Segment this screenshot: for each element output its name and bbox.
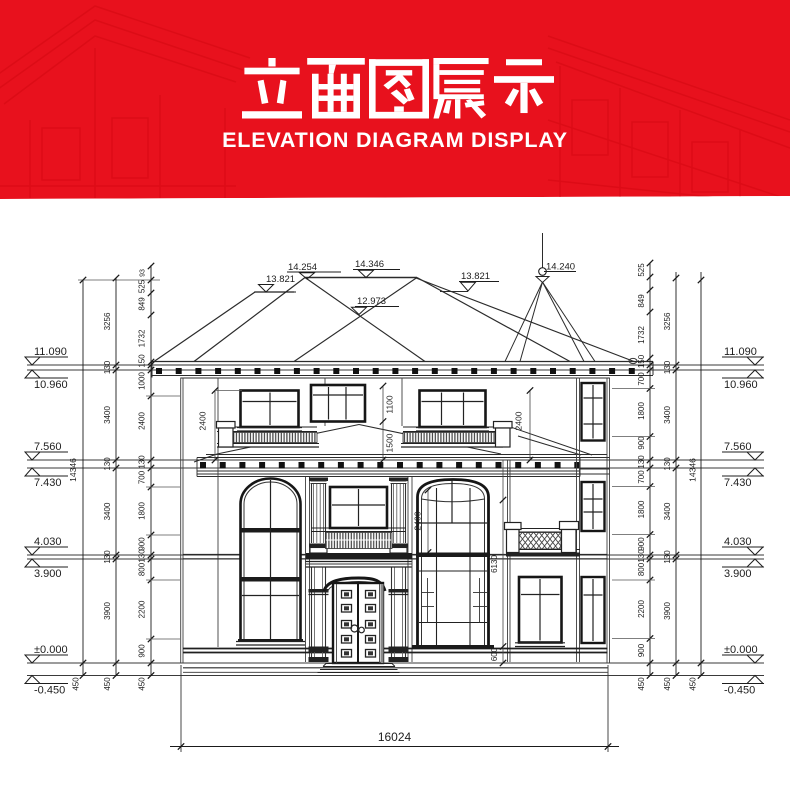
svg-text:130: 130 [663, 550, 672, 564]
svg-text:3.900: 3.900 [34, 568, 62, 580]
svg-text:450: 450 [663, 677, 672, 691]
svg-text:14.346: 14.346 [355, 259, 384, 270]
svg-text:6130: 6130 [490, 555, 499, 573]
svg-text:900: 900 [138, 537, 147, 551]
svg-text:11.090: 11.090 [724, 346, 757, 358]
svg-text:130: 130 [663, 457, 672, 471]
svg-text:14.240: 14.240 [546, 262, 575, 273]
svg-text:ELEVATION DIAGRAM DISPLAY: ELEVATION DIAGRAM DISPLAY [222, 128, 568, 152]
svg-text:130: 130 [103, 457, 112, 471]
svg-text:1100: 1100 [385, 395, 395, 414]
svg-text:130: 130 [103, 360, 112, 374]
svg-text:2200: 2200 [637, 600, 646, 618]
svg-text:10.960: 10.960 [724, 379, 758, 391]
svg-text:13.821: 13.821 [461, 271, 490, 282]
svg-text:525: 525 [637, 263, 646, 277]
svg-text:700: 700 [138, 470, 147, 484]
svg-text:14346: 14346 [688, 458, 698, 482]
svg-text:2200: 2200 [138, 600, 147, 618]
svg-text:1800: 1800 [138, 502, 147, 520]
svg-text:3900: 3900 [663, 602, 672, 620]
svg-text:7.560: 7.560 [34, 441, 62, 453]
svg-text:849: 849 [637, 294, 646, 308]
svg-text:3900: 3900 [103, 602, 112, 620]
svg-text:450: 450 [103, 677, 112, 691]
svg-text:450: 450 [637, 677, 646, 691]
svg-text:12.973: 12.973 [357, 296, 386, 307]
svg-text:3400: 3400 [663, 406, 672, 424]
svg-text:4.030: 4.030 [34, 536, 62, 548]
svg-text:130: 130 [138, 455, 147, 469]
svg-text:4.030: 4.030 [724, 536, 752, 548]
svg-text:1800: 1800 [637, 500, 646, 518]
svg-text:7.430: 7.430 [34, 477, 62, 489]
svg-text:3400: 3400 [663, 502, 672, 520]
svg-text:130: 130 [637, 549, 646, 563]
svg-text:2400: 2400 [514, 411, 524, 430]
svg-text:7.560: 7.560 [724, 441, 752, 453]
svg-text:13.821: 13.821 [266, 274, 295, 285]
svg-text:3256: 3256 [103, 312, 112, 330]
svg-text:800: 800 [138, 562, 147, 576]
svg-text:130: 130 [138, 549, 147, 563]
svg-text:1732: 1732 [138, 329, 147, 347]
svg-text:450: 450 [689, 677, 698, 691]
svg-text:3.900: 3.900 [724, 568, 752, 580]
svg-text:130: 130 [103, 550, 112, 564]
svg-text:1500: 1500 [385, 433, 395, 452]
svg-text:93: 93 [140, 269, 147, 277]
svg-text:600: 600 [490, 647, 499, 661]
svg-text:11.090: 11.090 [34, 346, 67, 358]
svg-text:900: 900 [138, 644, 147, 658]
svg-text:130: 130 [637, 455, 646, 469]
svg-text:3256: 3256 [663, 312, 672, 330]
svg-text:1732: 1732 [637, 326, 646, 344]
svg-text:3400: 3400 [103, 502, 112, 520]
svg-text:16024: 16024 [378, 730, 412, 744]
svg-text:849: 849 [138, 297, 147, 311]
svg-text:800: 800 [637, 562, 646, 576]
svg-text:900: 900 [637, 436, 646, 450]
svg-text:14346: 14346 [68, 458, 78, 482]
svg-text:10.960: 10.960 [34, 379, 68, 391]
svg-text:900: 900 [637, 537, 646, 551]
svg-text:450: 450 [138, 677, 147, 691]
svg-text:2400: 2400 [198, 411, 208, 430]
svg-text:130: 130 [663, 360, 672, 374]
svg-text:3400: 3400 [103, 406, 112, 424]
svg-text:525: 525 [138, 279, 147, 293]
svg-text:700: 700 [637, 372, 646, 386]
svg-text:900: 900 [637, 643, 646, 657]
svg-text:1800: 1800 [637, 402, 646, 420]
svg-text:150: 150 [138, 354, 147, 368]
svg-text:14.254: 14.254 [288, 262, 317, 273]
svg-text:2400: 2400 [413, 511, 423, 530]
svg-text:-0.450: -0.450 [724, 685, 755, 697]
svg-text:2400: 2400 [138, 412, 147, 430]
svg-text:-0.450: -0.450 [34, 685, 65, 697]
svg-text:700: 700 [637, 470, 646, 484]
svg-text:450: 450 [72, 677, 81, 691]
svg-text:±0.000: ±0.000 [724, 644, 758, 656]
svg-text:±0.000: ±0.000 [34, 644, 68, 656]
svg-text:150: 150 [637, 354, 646, 368]
svg-text:1000: 1000 [138, 372, 147, 390]
svg-text:7.430: 7.430 [724, 477, 752, 489]
